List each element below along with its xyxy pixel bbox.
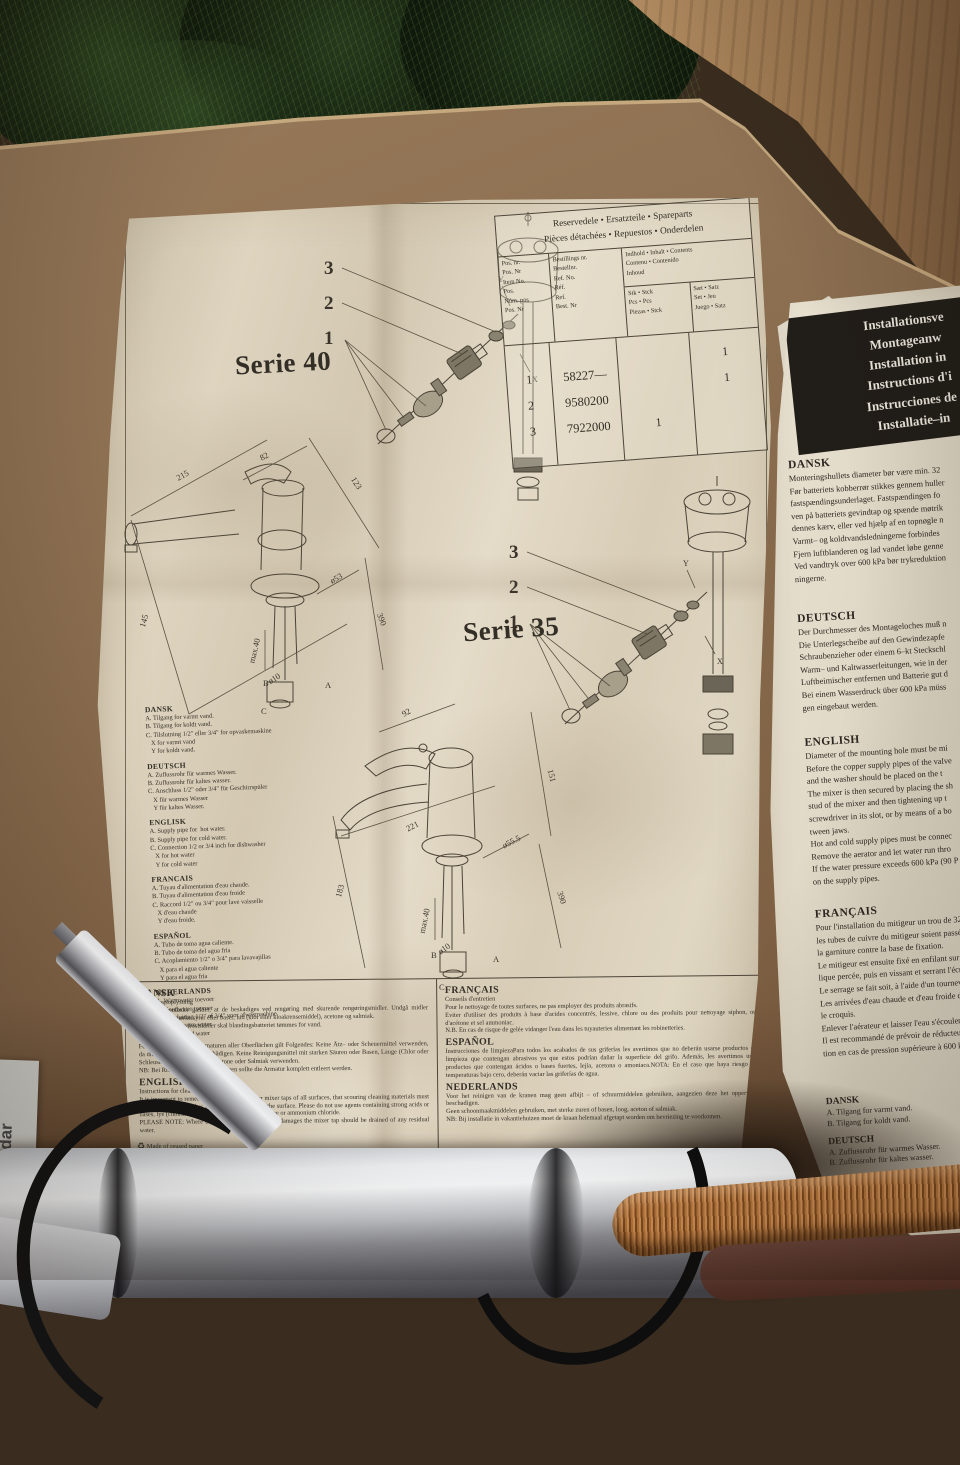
section-dansk: DANSK Monteringshullets diameter bør vær… [788, 446, 960, 587]
label-b: B [431, 950, 437, 960]
box-label: dar [0, 1123, 17, 1150]
ref-3: 7922000 [566, 413, 612, 442]
section-deutsch: DEUTSCH Der Durchmesser des Montageloche… [797, 599, 960, 715]
col-header-pos: Pos. nr. Pos. Nr Item No. Pos. Núm. pos … [498, 254, 555, 345]
dim-183: 183 [333, 883, 346, 898]
dim-390: 390 [555, 890, 568, 905]
sets-column: 1 1 [688, 313, 766, 440]
dim-390: 390 [375, 611, 389, 627]
section-english: ENGLISH Diameter of the mounting hole mu… [804, 723, 960, 889]
section-body: Der Durchmesser des Montageloches muß n … [798, 613, 960, 715]
label-a: A [493, 954, 500, 964]
pieces-column: 1 [616, 332, 698, 459]
section-body: Pour l'installation du mitigeur un trou … [815, 909, 960, 1061]
cleaning-body: Pour le nettoyage de toutes surfaces, ne… [445, 1001, 757, 1036]
part-number-3: 3 [324, 258, 334, 279]
ref-column: 58227— 9580200 7922000 [550, 338, 626, 465]
col-header-pieces: Stk • Stck Pcs • Pcs Piezas • Stck [625, 282, 694, 336]
part-number-3: 3 [509, 542, 519, 563]
cleaning-body: Instrucciones de limpiezaPara todos los … [445, 1045, 757, 1080]
dim-o53: ø53 [328, 571, 344, 586]
dim-max40: max.40 [417, 907, 432, 934]
label-b: B [263, 678, 269, 688]
serie35-dimension-drawing: 92 151 221 183 max.40 ø10 ø55.5 390 B A … [323, 686, 585, 998]
section-body: Monteringshullets diameter bør være min.… [789, 460, 960, 587]
dim-max40: max.40 [246, 637, 262, 664]
dim-92: 92 [400, 706, 412, 719]
dim-151: 151 [546, 768, 559, 783]
pos-1: 1 [525, 366, 533, 392]
photo-of-instruction-sheets: { "sheet1": { "serie40_label": "Serie 40… [0, 0, 960, 1280]
spareparts-table: Reservedele • Ersatzteile • Spareparts P… [494, 197, 768, 469]
part-number-2: 2 [324, 293, 334, 314]
dim-82: 82 [258, 450, 270, 463]
spareparts-instruction-sheet: 3 2 1 Y X Serie 40 Reservedele • Ersatzt… [95, 190, 775, 1175]
dim-221: 221 [404, 819, 420, 834]
col-header-ref: Bestillings nr. Bestellnr. Ref. No. Réf.… [549, 248, 628, 341]
ref-1: 58227— [562, 361, 608, 390]
pos-3: 3 [529, 418, 537, 444]
dim-215: 215 [174, 468, 190, 483]
ref-2: 9580200 [564, 387, 610, 416]
sets-1: 1 [721, 338, 729, 364]
dim-123: 123 [349, 475, 364, 491]
pos-2: 2 [527, 392, 535, 418]
dim-o555: ø55.5 [500, 833, 522, 851]
serie40-dimension-drawing: 215 82 123 145 max.40 ø10 ø53 390 B A C [117, 418, 407, 718]
serie40-title: Serie 40 [234, 346, 332, 382]
label-y: Y [683, 559, 689, 568]
pieces-3: 1 [655, 409, 663, 435]
label-x: X [717, 657, 723, 666]
section-body: Diameter of the mounting hole must be mi… [805, 737, 960, 889]
sets-2: 1 [723, 364, 731, 390]
dim-145: 145 [137, 613, 150, 628]
dim-o10: ø10 [436, 941, 452, 957]
section-francais: FRANÇAIS Pour l'installation du mitigeur… [814, 895, 960, 1061]
part-number-2: 2 [509, 577, 519, 598]
leaflet-title-banner: Installationsve Montageanw Installation … [784, 290, 960, 455]
